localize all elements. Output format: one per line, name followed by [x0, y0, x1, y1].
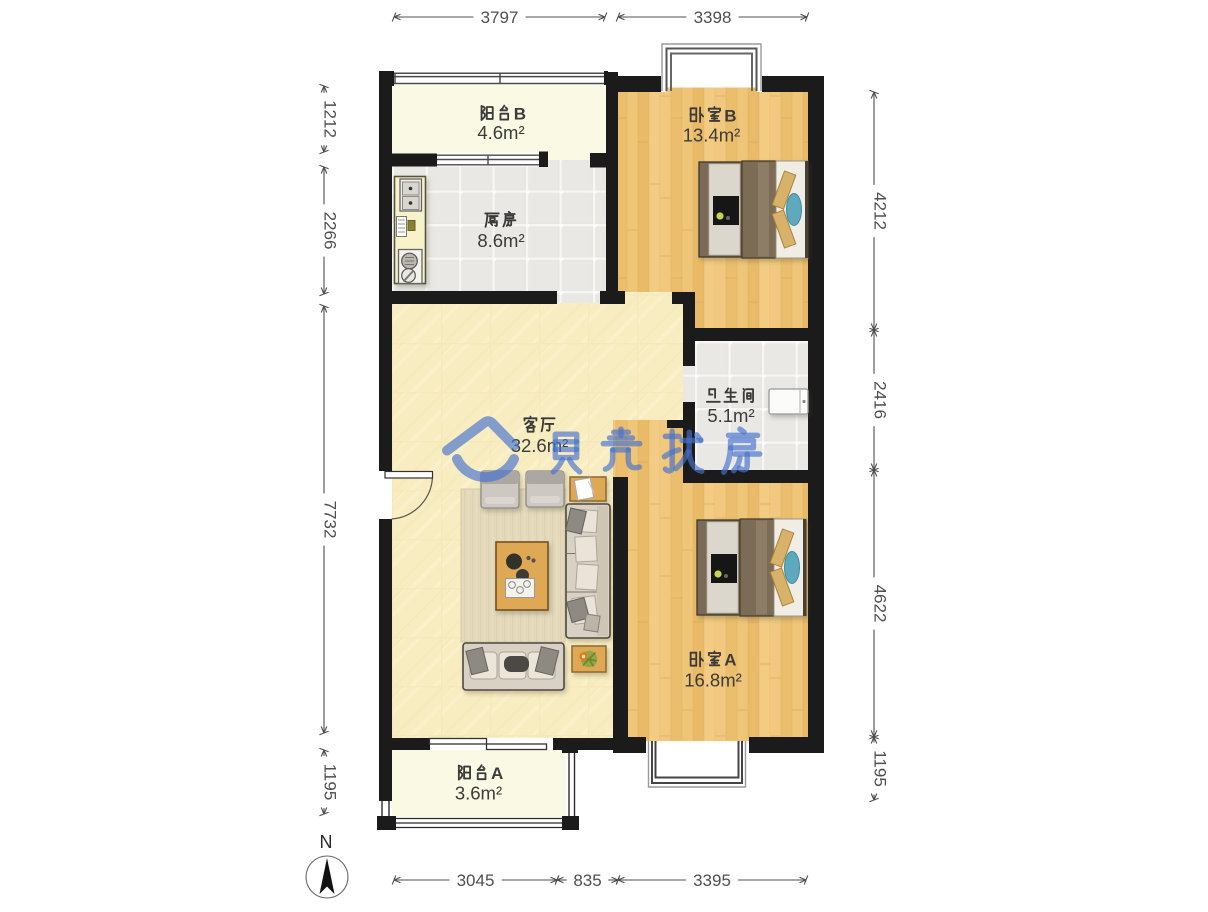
- svg-text:3.6m²: 3.6m²: [455, 783, 502, 804]
- svg-text:3395: 3395: [693, 871, 731, 890]
- svg-text:3398: 3398: [694, 8, 732, 27]
- svg-text:32.6m²: 32.6m²: [511, 435, 569, 456]
- svg-text:2266: 2266: [321, 212, 340, 250]
- svg-text:2416: 2416: [871, 381, 890, 419]
- svg-text:1195: 1195: [321, 764, 340, 801]
- svg-text:13.4m²: 13.4m²: [683, 124, 741, 145]
- svg-text:B: B: [514, 104, 526, 123]
- svg-text:1195: 1195: [871, 750, 890, 787]
- svg-text:835: 835: [573, 871, 601, 890]
- svg-text:4622: 4622: [871, 585, 890, 623]
- svg-text:3045: 3045: [457, 871, 495, 890]
- svg-text:5.1m²: 5.1m²: [707, 405, 754, 426]
- svg-text:3797: 3797: [481, 8, 519, 27]
- svg-text:8.6m²: 8.6m²: [477, 230, 524, 251]
- svg-text:4212: 4212: [871, 192, 890, 230]
- svg-text:7732: 7732: [321, 501, 340, 539]
- svg-text:16.8m²: 16.8m²: [684, 669, 742, 690]
- svg-text:1212: 1212: [321, 100, 340, 138]
- svg-text:A: A: [724, 651, 736, 670]
- svg-text:A: A: [491, 764, 503, 783]
- svg-text:4.6m²: 4.6m²: [477, 122, 524, 143]
- svg-text:B: B: [724, 106, 736, 125]
- svg-text:N: N: [320, 832, 333, 852]
